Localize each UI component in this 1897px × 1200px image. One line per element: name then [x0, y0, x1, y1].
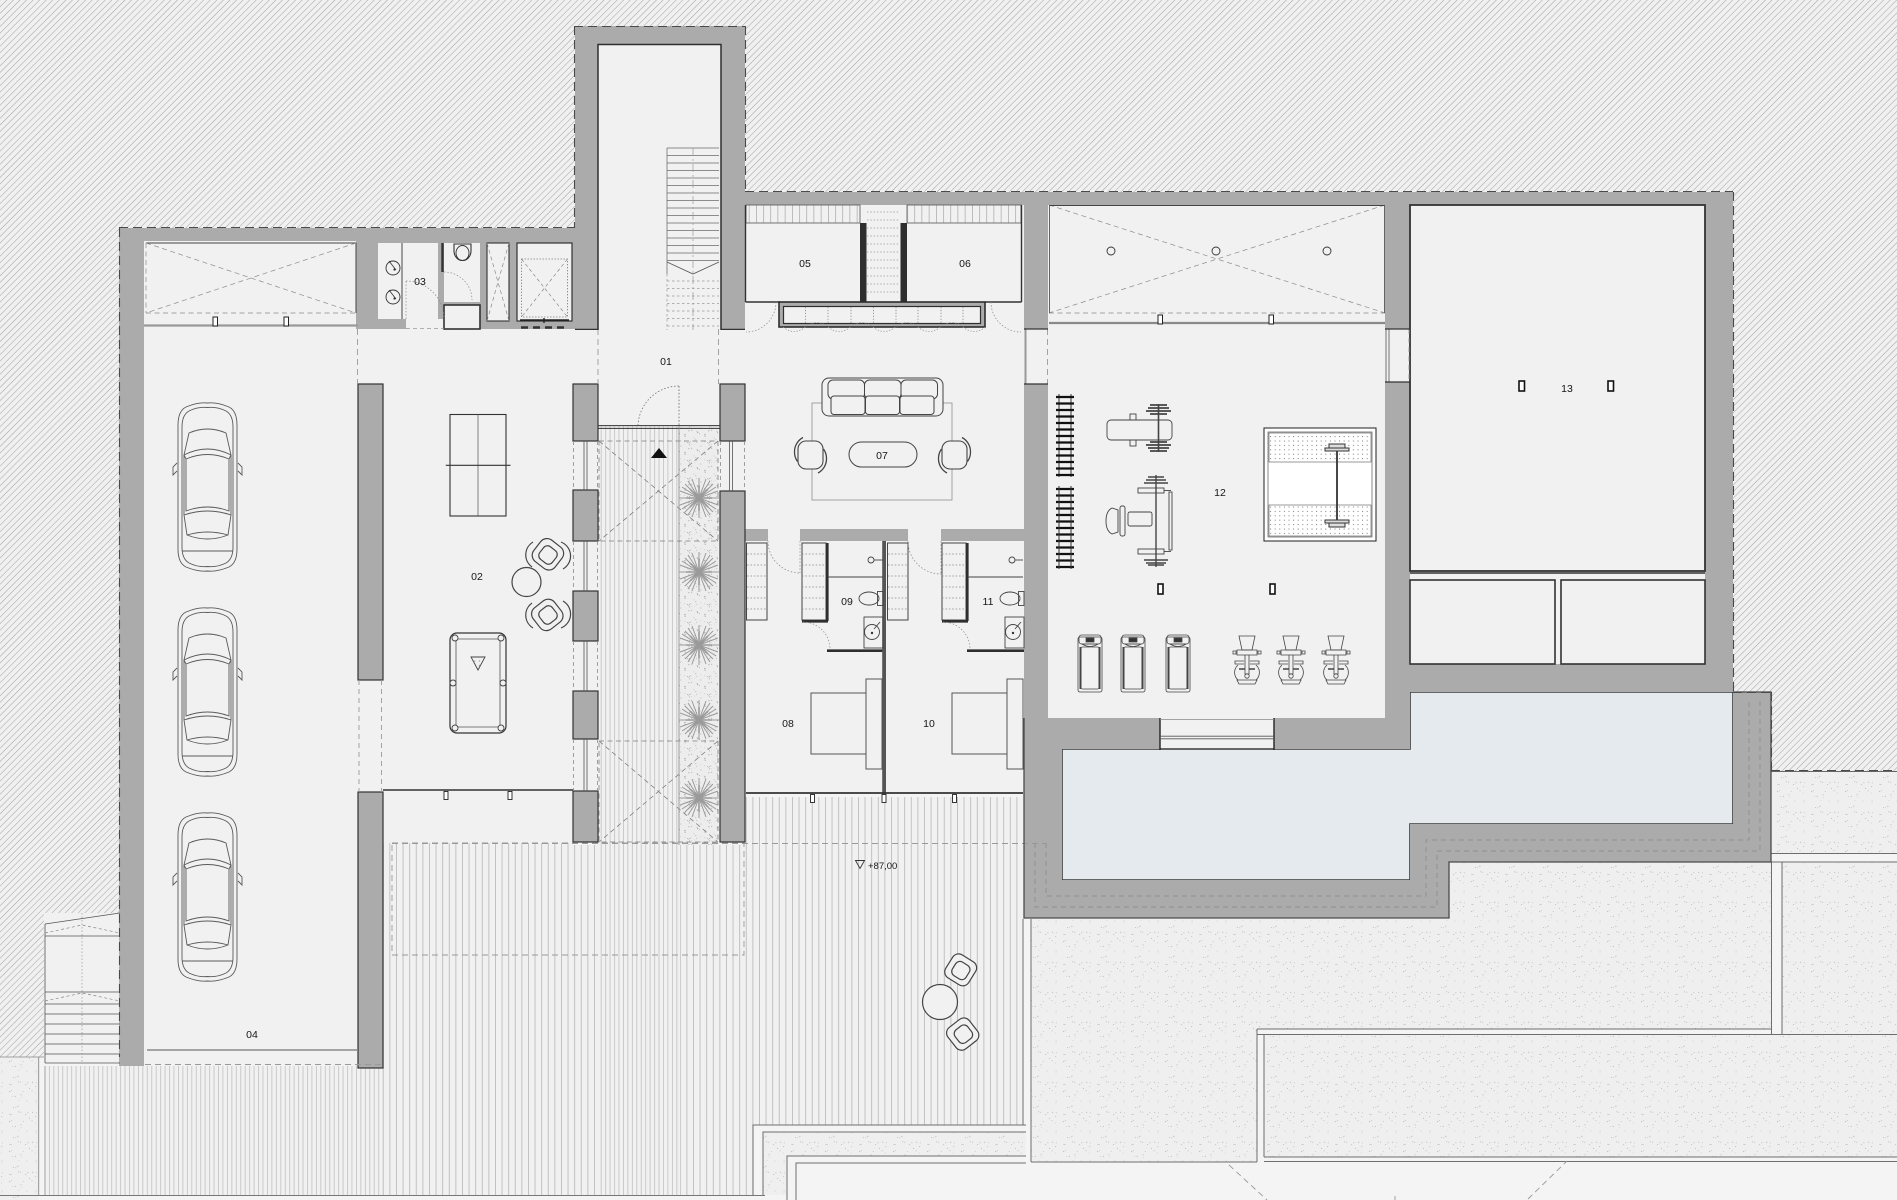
svg-text:01: 01: [660, 356, 672, 368]
svg-text:08: 08: [782, 718, 794, 730]
svg-text:02: 02: [471, 571, 483, 583]
svg-text:09: 09: [841, 596, 853, 608]
svg-text:10: 10: [923, 718, 935, 730]
svg-text:07: 07: [876, 450, 888, 462]
svg-text:04: 04: [246, 1029, 258, 1041]
svg-text:05: 05: [799, 258, 811, 270]
svg-text:+87,00: +87,00: [868, 861, 897, 872]
svg-text:06: 06: [959, 258, 971, 270]
svg-text:12: 12: [1214, 487, 1226, 499]
svg-text:03: 03: [414, 276, 426, 288]
svg-text:11: 11: [983, 596, 994, 608]
svg-text:13: 13: [1561, 383, 1573, 395]
